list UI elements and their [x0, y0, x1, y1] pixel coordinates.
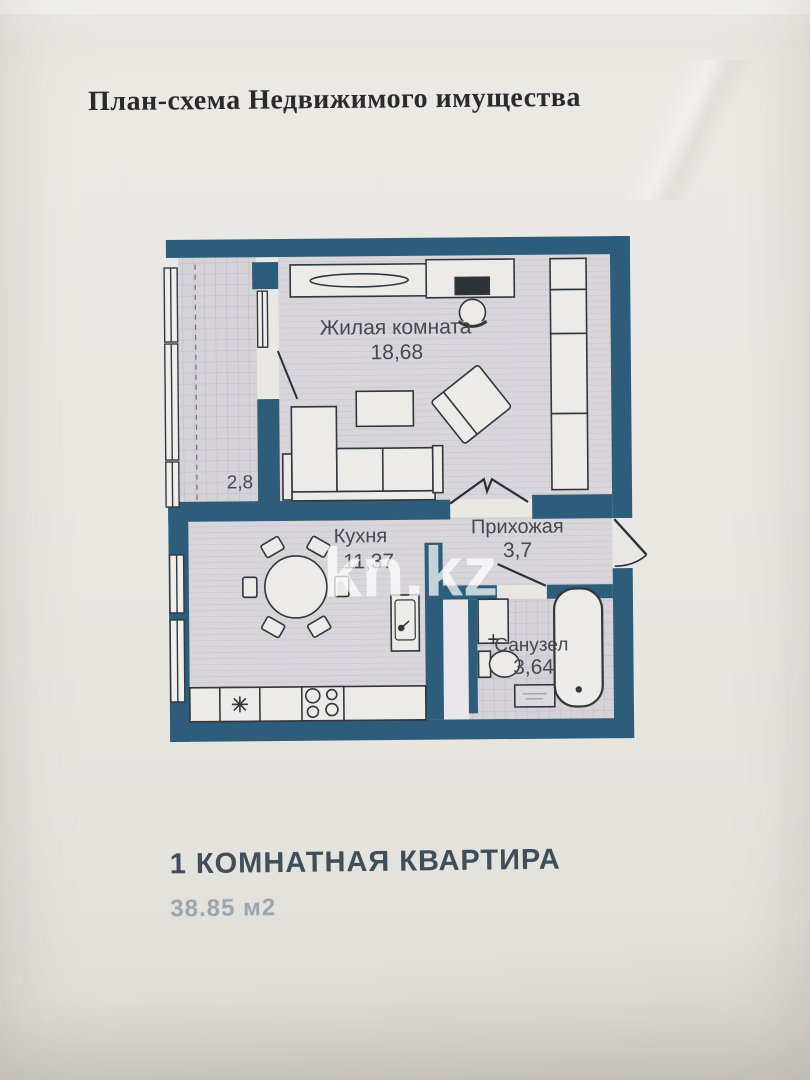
dining-table: [265, 556, 328, 619]
desk: [426, 259, 514, 298]
living-room-label: Жилая комната: [320, 315, 472, 339]
monitor: [455, 277, 489, 294]
stove: [302, 686, 344, 720]
bathroom-label: Санузел: [494, 635, 568, 657]
paper-shadow: [0, 930, 810, 1080]
apartment-total-area: 38.85 м2: [170, 891, 561, 924]
balcony-area: 2,8: [227, 472, 254, 493]
bathroom-vestibule-floor: [443, 599, 469, 719]
wall-living-kitchen: [168, 500, 450, 522]
coffee-table: [356, 391, 413, 426]
watermark: kn.kz: [322, 532, 498, 612]
wall-bathroom-inner: [468, 599, 478, 713]
wall-balcony-pillar: [252, 262, 278, 289]
dining-chair: [243, 577, 257, 597]
living-room-area: 18,68: [370, 341, 423, 364]
apartment-summary: 1 КОМНАТНАЯ КВАРТИРА 38.85 м2: [170, 844, 562, 924]
sideboard: [290, 264, 428, 297]
balcony-partition-window: [257, 291, 267, 347]
document-title: План-схема Недвижимого имущества: [88, 82, 581, 118]
sink-asterisk-icon: [232, 696, 248, 712]
floor-plan: Жилая комната 18,68 Кухня 11,37 Прихожая…: [138, 226, 663, 751]
paper-crease: [560, 60, 810, 200]
washing-machine: [515, 685, 555, 707]
wardrobe: [550, 258, 588, 489]
photo-of-document: { "document": { "title": "План-схема Нед…: [0, 0, 810, 1080]
bathroom-area: 3,64: [513, 656, 554, 679]
hallway-area: 3,7: [503, 539, 532, 562]
wall-balcony-partition: [257, 399, 280, 504]
wall-right-lower: [613, 568, 634, 738]
apartment-type: 1 КОМНАТНАЯ КВАРТИРА: [170, 844, 561, 882]
kitchen-windows: [170, 555, 185, 702]
entrance-door: [612, 518, 646, 568]
kitchen-sink: [220, 687, 260, 721]
balcony-glazing: [164, 268, 179, 507]
balcony-floor: [178, 257, 258, 505]
paper-highlight: [0, 0, 810, 14]
wall-right-upper: [610, 236, 632, 518]
